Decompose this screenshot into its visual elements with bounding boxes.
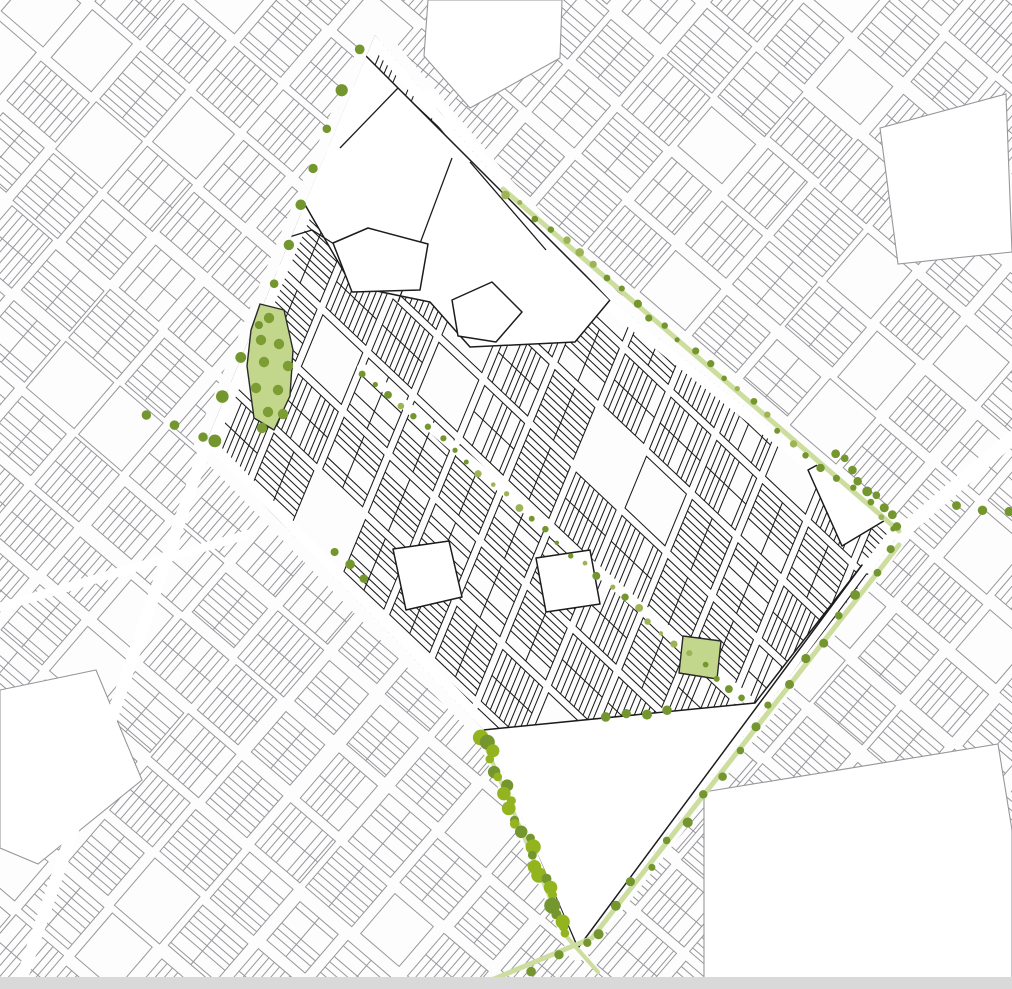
- trees-nw-edge-dot: [323, 125, 332, 134]
- trees-se-tip-dot: [526, 967, 536, 977]
- park-west-tree-dot: [273, 385, 283, 395]
- trees-nw-edge-dot: [336, 84, 348, 96]
- trees-inner-avenue-dot: [542, 526, 548, 532]
- park-west-tree-dot: [257, 423, 267, 433]
- trees-inner-avenue-dot: [621, 594, 628, 601]
- trees-left-mid-dot: [170, 420, 180, 430]
- trees-inner-avenue-dot: [410, 413, 416, 419]
- trees-east-corner-dot: [862, 486, 872, 496]
- trees-triangle-west-dot: [493, 772, 502, 781]
- trees-inner-avenue-dot: [703, 662, 709, 668]
- trees-inner-avenue-dot: [714, 676, 720, 682]
- trees-sw-street-dot: [345, 560, 355, 570]
- trees-inner-avenue-dot: [568, 553, 573, 558]
- trees-se-avenue-dot: [737, 747, 745, 755]
- trees-se-avenue-dot: [683, 817, 693, 827]
- trees-ne-avenue-dot: [707, 360, 714, 367]
- trees-nw-edge-dot: [296, 200, 307, 211]
- trees-left-mid-dot: [198, 432, 207, 441]
- trees-east-corner-dot: [853, 477, 862, 486]
- trees-ne-avenue-dot: [751, 398, 758, 405]
- city-map: [0, 0, 1012, 989]
- park-west-tree-dot: [259, 357, 269, 367]
- trees-inner-avenue-dot: [515, 504, 523, 512]
- trees-triangle-west-dot: [486, 755, 495, 764]
- plaza-west: [393, 541, 462, 610]
- trees-inner-avenue-dot: [504, 491, 509, 496]
- trees-inner-avenue-dot: [491, 482, 496, 487]
- trees-se-avenue-dot: [718, 772, 727, 781]
- trees-ne-avenue-dot: [645, 315, 652, 322]
- trees-se-avenue-dot: [699, 790, 707, 798]
- plaza-center: [536, 550, 600, 612]
- trees-ne-avenue-dot: [563, 236, 571, 244]
- trees-triangle-top-dot: [662, 705, 672, 715]
- trees-triangle-west-dot: [561, 929, 570, 938]
- trees-inner-avenue-dot: [725, 685, 733, 693]
- trees-nw-edge-dot: [355, 44, 365, 54]
- trees-se-tip-dot: [583, 939, 591, 947]
- trees-triangle-west-dot: [515, 826, 528, 839]
- trees-ne-avenue-dot: [721, 376, 727, 382]
- trees-ne-avenue-dot: [590, 261, 597, 268]
- trees-inner-avenue-dot: [373, 382, 378, 387]
- trees-ne-avenue-dot: [532, 216, 539, 223]
- trees-se-avenue-dot: [801, 654, 810, 663]
- trees-ne-avenue-dot: [517, 200, 522, 205]
- trees-inner-avenue-dot: [635, 604, 643, 612]
- trees-east-corner-dot: [831, 449, 840, 458]
- park-west-tree-dot: [278, 409, 288, 419]
- trees-inner-avenue-dot: [474, 470, 481, 477]
- trees-sw-street-dot: [360, 574, 369, 583]
- trees-ne-avenue-dot: [774, 428, 780, 434]
- trees-ne-avenue-dot: [802, 452, 808, 458]
- trees-ne-avenue-dot: [675, 337, 680, 342]
- trees-se-avenue-dot: [648, 864, 655, 871]
- trees-se-avenue-dot: [751, 722, 760, 731]
- trees-inner-avenue-dot: [592, 572, 600, 580]
- trees-se-avenue-dot: [819, 639, 828, 648]
- trees-ne-avenue-dot: [604, 275, 611, 282]
- trees-ne-avenue-dot: [692, 347, 699, 354]
- trees-nw-edge-dot: [270, 279, 279, 288]
- trees-inner-avenue-dot: [670, 640, 677, 647]
- trees-inner-avenue-dot: [359, 371, 366, 378]
- trees-triangle-west-dot: [528, 851, 537, 860]
- trees-se-avenue-dot: [887, 545, 895, 553]
- park-west-tree-dot: [274, 339, 284, 349]
- trees-sw-street-dot: [331, 548, 339, 556]
- trees-ne-avenue-dot: [501, 191, 510, 200]
- trees-inner-avenue-dot: [738, 695, 745, 702]
- trees-inner-avenue-dot: [583, 561, 588, 566]
- trees-se-avenue-dot: [594, 929, 604, 939]
- trees-right-edge-dot: [978, 506, 987, 515]
- park-west-tree-dot: [251, 383, 261, 393]
- trees-ne-avenue-dot: [764, 411, 770, 417]
- trees-inner-avenue-dot: [384, 391, 392, 399]
- trees-inner-avenue-dot: [610, 584, 615, 589]
- trees-inner-avenue-dot: [659, 631, 663, 635]
- trees-se-avenue-dot: [626, 877, 635, 886]
- park-square-east: [679, 636, 721, 679]
- trees-inner-avenue-dot: [555, 541, 560, 546]
- trees-ne-avenue-dot: [548, 226, 554, 232]
- trees-inner-avenue-dot: [686, 650, 692, 656]
- trees-ne-avenue-dot: [661, 322, 667, 328]
- trees-nw-edge-dot: [284, 240, 294, 250]
- trees-ne-avenue-dot: [833, 475, 840, 482]
- trees-left-mid-dot: [142, 410, 151, 419]
- trees-triangle-top-dot: [622, 709, 631, 718]
- trees-inner-avenue-dot: [529, 516, 535, 522]
- park-west-tree-dot: [263, 407, 273, 417]
- trees-ne-avenue-dot: [878, 514, 884, 520]
- trees-inner-avenue-dot: [440, 435, 446, 441]
- park-west-tree-dot: [264, 313, 274, 323]
- trees-ne-avenue-dot: [735, 386, 740, 391]
- trees-se-avenue-dot: [785, 680, 794, 689]
- trees-nw-edge-dot: [235, 352, 246, 363]
- trees-se-avenue-dot: [874, 569, 882, 577]
- trees-se-avenue-dot: [764, 701, 771, 708]
- trees-ne-avenue-dot: [634, 300, 642, 308]
- trees-ne-avenue-dot: [868, 499, 875, 506]
- trees-ne-avenue-dot: [619, 285, 625, 291]
- trees-se-avenue-dot: [663, 837, 671, 845]
- trees-se-tip-dot: [554, 950, 563, 959]
- trees-nw-edge-dot: [208, 434, 221, 447]
- trees-inner-avenue-dot: [644, 618, 650, 624]
- trees-east-corner-dot: [888, 510, 897, 519]
- trees-se-avenue-dot: [835, 612, 843, 620]
- park-west-tree-dot: [283, 361, 293, 371]
- trees-ne-avenue-dot: [816, 464, 824, 472]
- trees-east-corner-dot: [893, 522, 902, 531]
- city-map-svg: [0, 0, 1012, 989]
- trees-nw-edge-dot: [255, 321, 263, 329]
- trees-east-corner-dot: [841, 454, 849, 462]
- trees-se-avenue-dot: [611, 901, 621, 911]
- trees-triangle-west-dot: [502, 802, 516, 816]
- trees-triangle-top-dot: [642, 710, 652, 720]
- trees-east-corner-dot: [880, 503, 889, 512]
- trees-triangle-top-dot: [601, 712, 611, 722]
- trees-right-edge-dot: [952, 501, 961, 510]
- trees-nw-edge-dot: [308, 164, 317, 173]
- trees-inner-avenue-dot: [425, 424, 431, 430]
- trees-east-corner-dot: [848, 466, 857, 475]
- trees-inner-avenue-dot: [464, 460, 469, 465]
- trees-ne-avenue-dot: [575, 248, 584, 257]
- park-west-tree-dot: [256, 335, 266, 345]
- trees-se-avenue-dot: [850, 590, 860, 600]
- trees-ne-avenue-dot: [850, 485, 856, 491]
- bottom-edge-band: [0, 977, 1012, 989]
- trees-inner-avenue-dot: [452, 448, 457, 453]
- trees-inner-avenue-dot: [398, 403, 405, 410]
- trees-east-corner-dot: [873, 491, 881, 499]
- trees-nw-edge-dot: [216, 390, 229, 403]
- trees-ne-avenue-dot: [790, 440, 797, 447]
